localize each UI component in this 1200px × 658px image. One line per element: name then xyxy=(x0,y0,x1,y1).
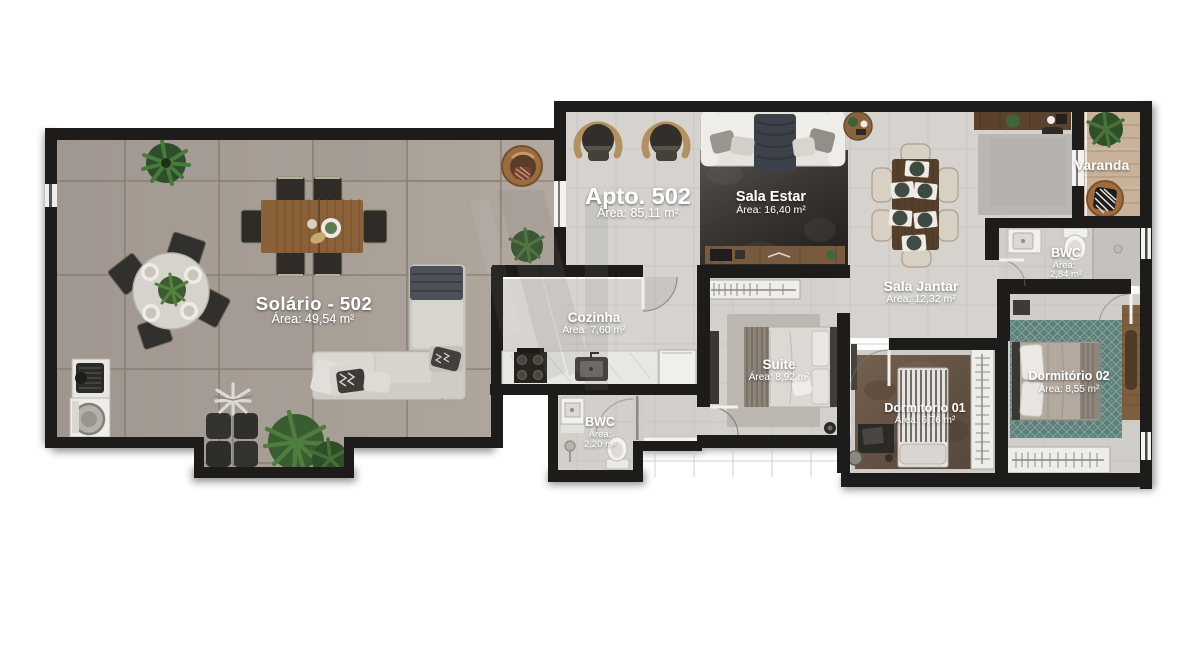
svg-text:Área: 8,55 m²: Área: 8,55 m² xyxy=(1039,382,1100,395)
svg-text:2,84 m²: 2,84 m² xyxy=(1050,269,1082,280)
svg-text:BWC: BWC xyxy=(1051,246,1081,260)
svg-text:Área: 7,60 m²: Área: 7,60 m² xyxy=(562,323,626,336)
svg-text:2,20 m²: 2,20 m² xyxy=(584,439,616,450)
svg-text:Dormitório 02: Dormitório 02 xyxy=(1028,369,1109,383)
svg-text:Cozinha: Cozinha xyxy=(568,310,621,325)
svg-text:Sala Jantar: Sala Jantar xyxy=(884,278,959,294)
svg-text:Área: 6,76 m²: Área: 6,76 m² xyxy=(895,413,956,426)
svg-text:Dormitório 01: Dormitório 01 xyxy=(884,401,965,415)
svg-text:Varanda: Varanda xyxy=(1075,157,1130,173)
svg-text:Área: 85,11 m²: Área: 85,11 m² xyxy=(597,205,679,220)
svg-text:Área: 16,40 m²: Área: 16,40 m² xyxy=(736,203,806,216)
svg-text:BWC: BWC xyxy=(585,415,615,429)
svg-text:Área: 12,32 m²: Área: 12,32 m² xyxy=(886,292,956,305)
svg-text:Sala Estar: Sala Estar xyxy=(736,189,806,205)
svg-text:Suite: Suite xyxy=(762,357,795,372)
svg-text:Área: 49,54 m²: Área: 49,54 m² xyxy=(272,311,355,326)
svg-text:Área: 8,92 m²: Área: 8,92 m² xyxy=(749,370,810,383)
svg-text:Solário - 502: Solário - 502 xyxy=(256,293,373,314)
